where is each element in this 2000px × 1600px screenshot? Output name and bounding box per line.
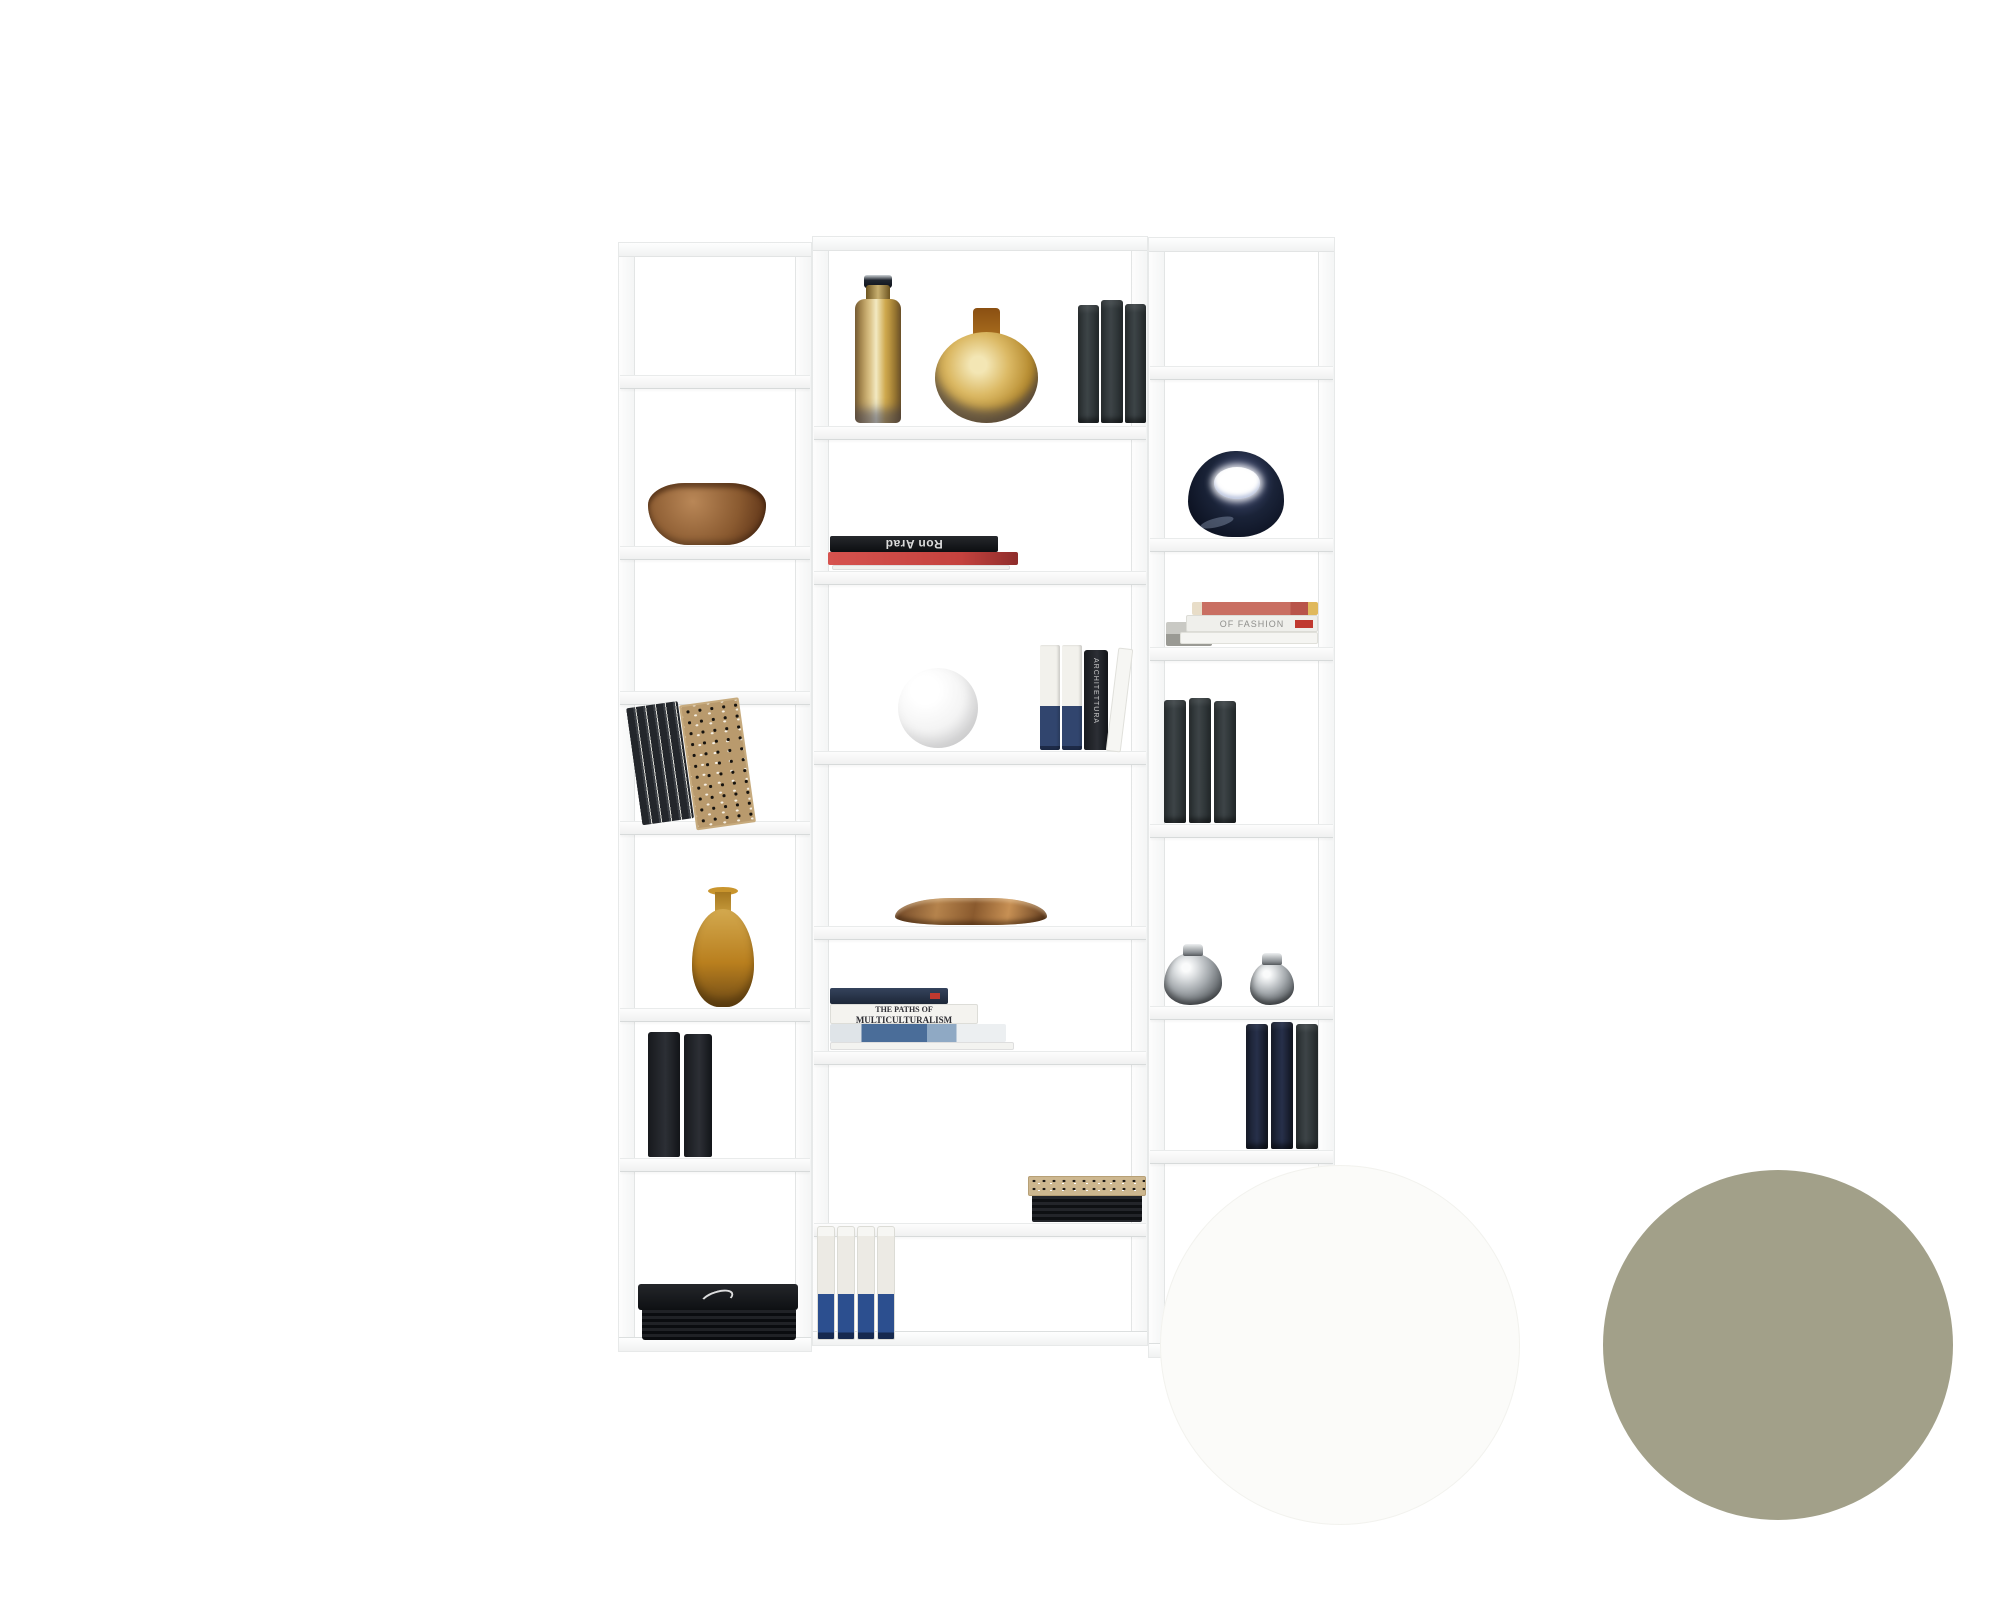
multiculturalism-book-stack: THE PATHS OF MULTICULTURALISM <box>830 988 1014 1050</box>
shelf-board <box>1150 1150 1333 1164</box>
book-spine <box>648 1032 680 1157</box>
portfolio-cover <box>638 1284 798 1310</box>
silver-metal-vase-small <box>1250 962 1294 1005</box>
red-fashion-book <box>1192 602 1318 615</box>
shelf-wall <box>813 237 829 1345</box>
binder-spine <box>817 1226 835 1340</box>
gloss-highlight <box>1199 514 1234 531</box>
spine-red-label <box>930 993 940 999</box>
finish-swatch-olive-grey[interactable] <box>1603 1170 1953 1520</box>
black-architecture-book: ARCHITETTURA <box>1084 650 1108 750</box>
ron-arad-book-stack: Ron Arad <box>828 536 1020 570</box>
shelf-board <box>1150 1006 1333 1020</box>
amber-glass-bottle <box>855 275 901 423</box>
amber-round-vase <box>935 308 1038 423</box>
shelf-board <box>1150 824 1333 838</box>
shelf-wall <box>1149 238 1165 1357</box>
shelf-wall <box>619 243 635 1351</box>
multiculturalism-book: THE PATHS OF MULTICULTURALISM <box>830 1004 978 1024</box>
book-spine <box>1164 700 1186 823</box>
shelf-board <box>620 546 810 560</box>
shelf-board <box>619 243 811 257</box>
binder-spine <box>857 1226 875 1340</box>
white-sphere-ornament <box>898 668 978 748</box>
book-spine <box>1214 701 1236 823</box>
shelf-board <box>620 1008 810 1022</box>
book-spine <box>1062 645 1082 750</box>
shelf-board <box>814 751 1146 765</box>
wooden-tray <box>895 898 1047 925</box>
vase-body <box>692 909 754 1007</box>
leaning-white-book <box>1106 647 1134 752</box>
spine-red-label <box>1295 620 1313 628</box>
grey-cloth-books <box>1078 300 1146 423</box>
fashion-book: OF FASHION <box>1186 615 1318 632</box>
thin-white-book <box>832 565 1010 570</box>
magazine-cover <box>1028 1176 1146 1196</box>
book-spine <box>1040 645 1060 750</box>
book-spine <box>1271 1022 1293 1149</box>
shelf-board <box>814 571 1146 585</box>
shelf-board <box>1150 538 1333 552</box>
wooden-bowl <box>648 483 766 545</box>
shelf-board <box>814 926 1146 940</box>
book-spine <box>1125 304 1146 423</box>
book-spine <box>1246 1024 1268 1149</box>
logo-squiggle-icon <box>699 1286 736 1311</box>
grey-cloth-books <box>1164 698 1238 823</box>
book-spine <box>684 1034 712 1157</box>
vase-neck <box>1262 953 1282 965</box>
product-photo: Ron Arad ARCHITETTURA THE PATHS OF MULTI… <box>0 0 2000 1600</box>
navy-flat-book <box>830 988 948 1004</box>
thin-white-book <box>830 1042 1014 1050</box>
thin-white-book <box>1180 632 1318 644</box>
vase-neck <box>1183 944 1203 956</box>
navy-books <box>1246 1022 1320 1149</box>
shelf-board <box>1150 647 1333 661</box>
shelf-board <box>814 426 1146 440</box>
finish-swatch-white[interactable] <box>1160 1165 1520 1525</box>
navy-ceramic-pebble-vase <box>1188 451 1284 537</box>
shelf-board <box>620 375 810 389</box>
white-blue-binders <box>817 1226 897 1340</box>
fashion-book-stack: OF FASHION <box>1166 602 1320 646</box>
photo-cover-book <box>830 1024 1006 1042</box>
book-spine <box>1189 698 1211 823</box>
paperback-book-group: ARCHITETTURA <box>1040 645 1130 750</box>
book-title-line1: THE PATHS OF <box>831 1005 977 1015</box>
red-book <box>828 552 1018 565</box>
magazine-pages <box>1032 1196 1142 1222</box>
shelf-board <box>620 1158 810 1172</box>
binder-spine <box>877 1226 895 1340</box>
patterned-magazine-stack <box>1028 1176 1146 1222</box>
shelf-board <box>1149 238 1334 252</box>
book-spine <box>1101 300 1123 423</box>
vase-body <box>935 332 1038 423</box>
amber-teardrop-vase <box>692 887 754 1007</box>
black-books-pair <box>648 1032 716 1157</box>
bottle-body <box>855 299 901 423</box>
book-title: ARCHITETTURA <box>1092 658 1099 724</box>
shelf-wall <box>795 243 811 1351</box>
book-spine <box>1296 1024 1318 1149</box>
shelf-board <box>813 237 1147 251</box>
shelf-board <box>1150 366 1333 380</box>
binder-spine <box>837 1226 855 1340</box>
book-title: Ron Arad <box>830 536 998 552</box>
black-portfolio-stack <box>638 1284 798 1340</box>
book-spine <box>1078 305 1099 423</box>
ron-arad-book: Ron Arad <box>830 536 998 552</box>
portfolio-pages <box>642 1310 796 1340</box>
pebble-opening <box>1214 467 1260 499</box>
shelf-board <box>814 1051 1146 1065</box>
